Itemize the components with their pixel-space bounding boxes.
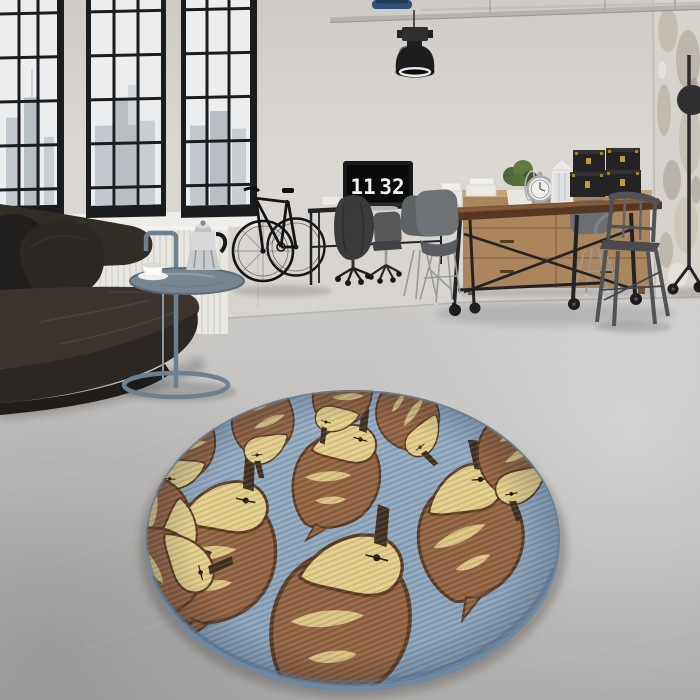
- trunk: [570, 172, 605, 197]
- jacket: [334, 195, 374, 260]
- factory-windows: [0, 0, 258, 232]
- bike-saddle: [282, 188, 294, 193]
- window-3: [181, 0, 257, 218]
- distressed-column: [652, 0, 700, 300]
- clock-minutes: 32: [379, 175, 404, 199]
- trunk: [573, 150, 605, 172]
- window-2: [86, 0, 166, 218]
- chair-shadow: [596, 321, 672, 333]
- window-1: [0, 0, 64, 218]
- loft-room-photo: 11 32: [0, 0, 700, 700]
- bike-shadow: [232, 285, 332, 297]
- desk-papers: [322, 196, 340, 205]
- scene: 11 32: [0, 0, 700, 700]
- trunk: [606, 148, 640, 171]
